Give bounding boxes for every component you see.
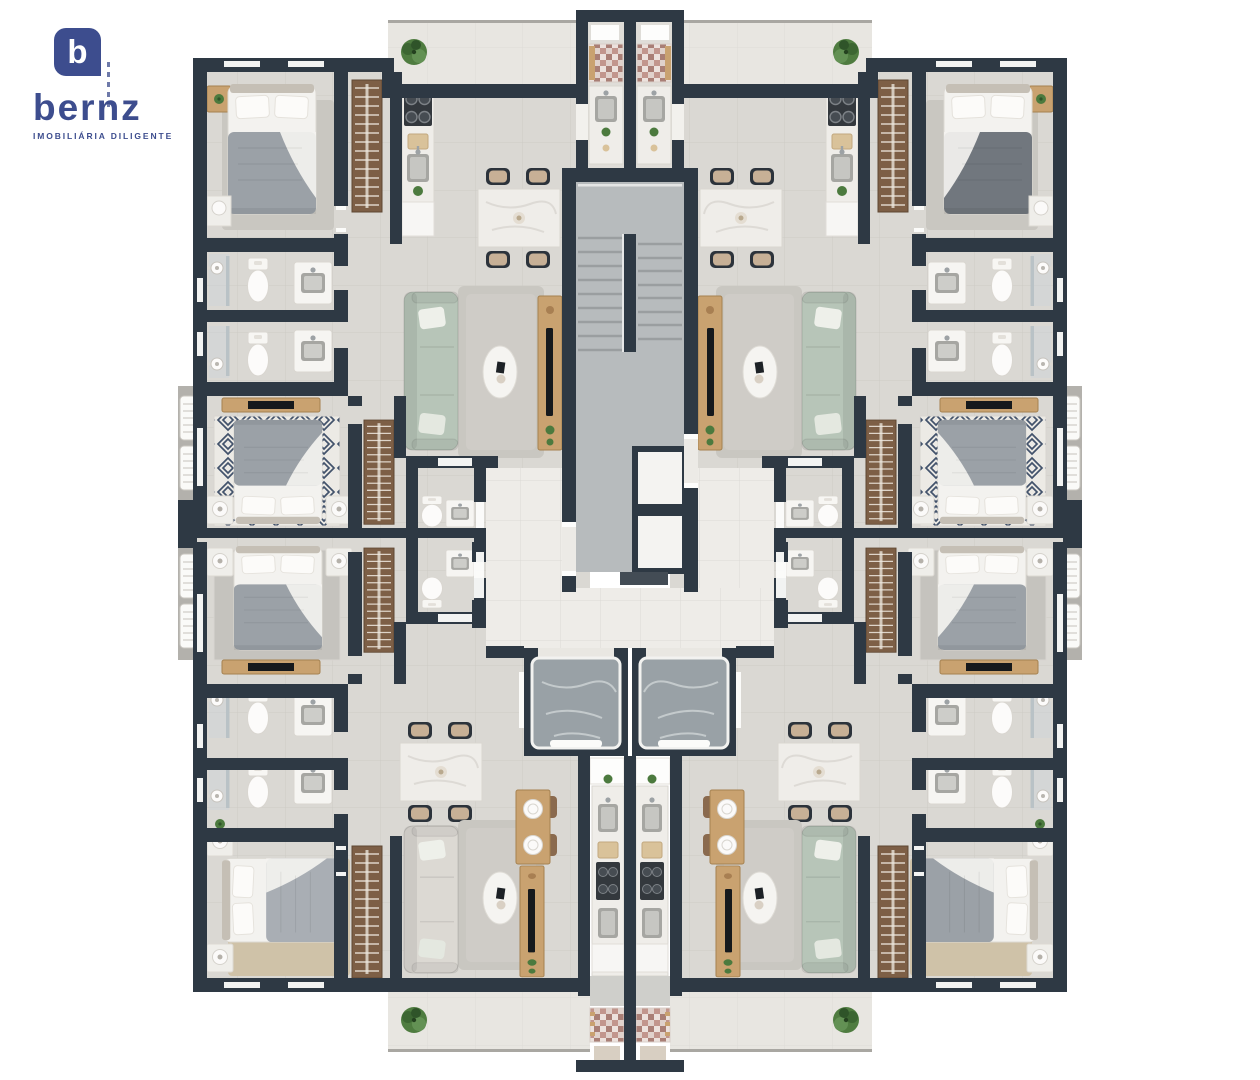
common-hallway	[486, 588, 774, 648]
stair-divider-wall	[624, 234, 636, 352]
stairwell	[562, 168, 698, 592]
door-mat	[620, 572, 668, 585]
stair-door	[562, 526, 576, 572]
brand-monogram: b	[67, 35, 87, 68]
unit-top-left	[178, 20, 594, 542]
floor-plan-rendering	[0, 0, 1260, 1080]
shaft-room	[638, 452, 682, 504]
brand-tagline: IMOBILIÁRIA DILIGENTE	[33, 131, 183, 141]
brand-vertical-microtext	[107, 62, 110, 107]
brand-logo: b bernz IMOBILIÁRIA DILIGENTE	[33, 28, 183, 141]
stair-door	[684, 438, 698, 484]
page: b bernz IMOBILIÁRIA DILIGENTE	[0, 0, 1260, 1080]
shaft-room	[638, 516, 682, 568]
unit-top-right	[666, 20, 1082, 542]
brand-monogram-badge: b	[54, 28, 101, 76]
